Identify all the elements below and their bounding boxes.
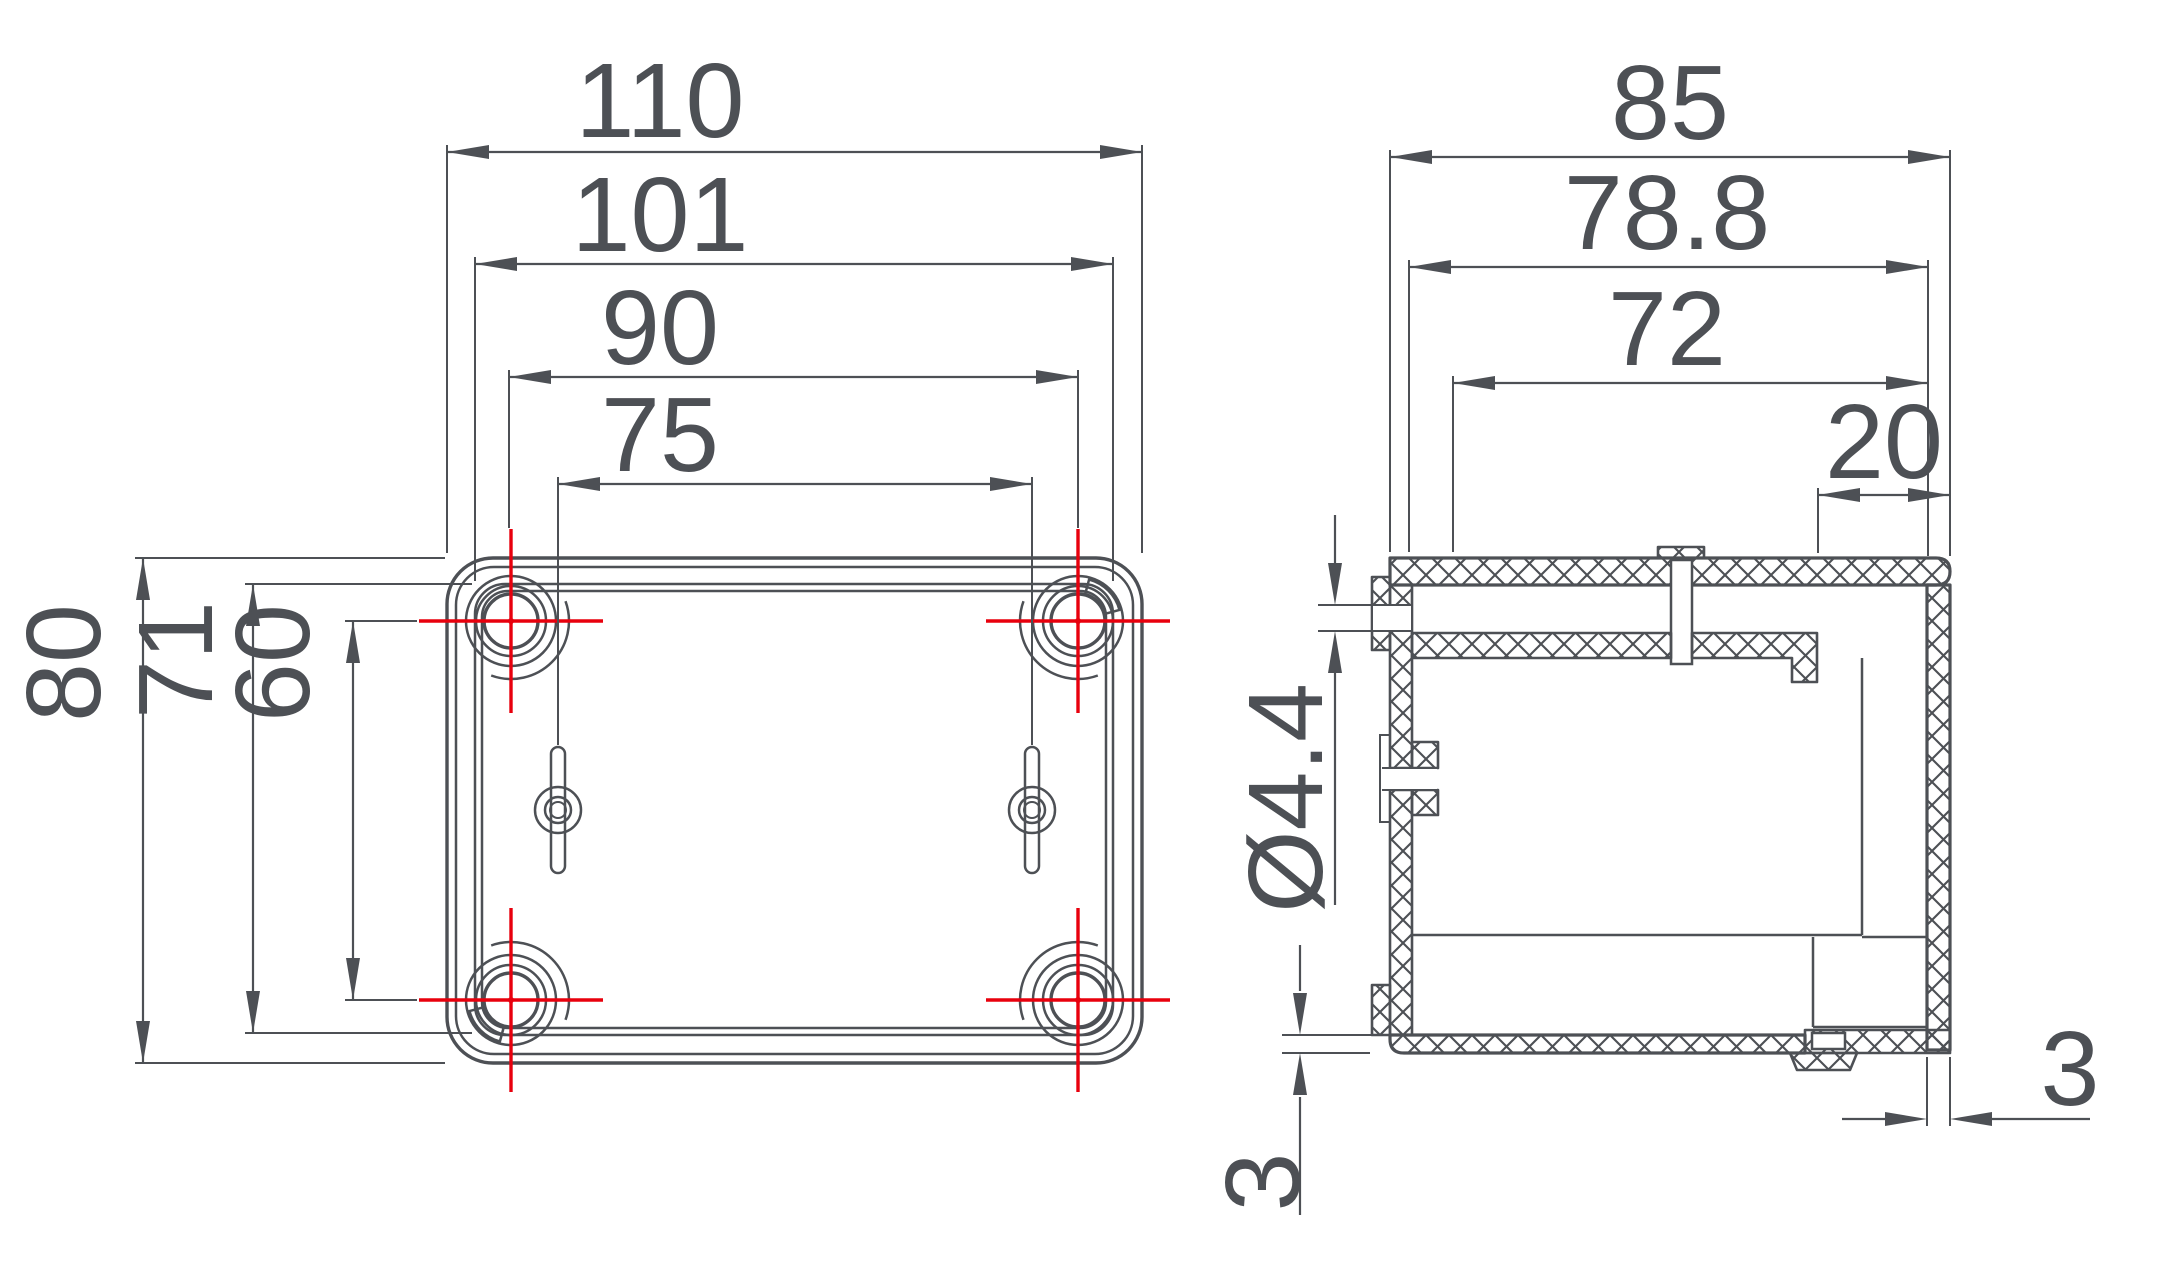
dim-label: 72 (1608, 270, 1726, 388)
dim-label: 75 (601, 376, 719, 494)
centerline-crosses (419, 529, 1170, 1092)
keyhole-boss-lower (1412, 790, 1438, 815)
cover-latch-tooth (1790, 1053, 1857, 1070)
side-view-section-walls (1372, 547, 1950, 1070)
dim-label: 85 (1611, 44, 1729, 162)
dim-depth-20: 20 (1818, 383, 1950, 553)
back-wall-lower (1390, 790, 1412, 1035)
dim-label: 80 (5, 604, 123, 722)
dim-label: 3 (2041, 1010, 2100, 1128)
bottom-wall-section (1390, 1035, 1805, 1053)
cover-screw-bump (1658, 547, 1704, 558)
side-view-holes (1372, 605, 1845, 1049)
dim-width-101: 101 (475, 156, 1113, 581)
dim-height-60: 60 (214, 604, 417, 1000)
front-view: 110 101 90 75 80 (5, 42, 1170, 1092)
latch-window (1812, 1033, 1845, 1049)
dim-width-75: 75 (558, 376, 1032, 745)
keyhole-slot-left (535, 747, 581, 873)
mount-tab-bottom (1372, 985, 1390, 1035)
inner-rib-left (1412, 633, 1671, 658)
inner-rib-hook (1692, 633, 1817, 682)
dim-label: 78.8 (1564, 154, 1770, 272)
technical-drawing: 110 101 90 75 80 (0, 0, 2164, 1286)
cover-wall-section (1927, 585, 1950, 1050)
dim-width-110: 110 (447, 42, 1142, 553)
dim-label: 101 (572, 156, 749, 274)
dim-label: 90 (601, 269, 719, 387)
side-view-interior-lines (1412, 658, 1927, 1027)
cover-screw-hole (1671, 560, 1692, 664)
corner-boss-bottom-right (1020, 942, 1123, 1045)
dim-label: 60 (214, 604, 332, 722)
side-view: 85 78.8 72 20 Ø4.4 (1204, 44, 2099, 1215)
dim-base-thickness: 3 (1204, 945, 1388, 1215)
dim-label: Ø4.4 (1227, 683, 1345, 913)
dim-label: 110 (576, 42, 745, 160)
dim-label: 3 (1204, 1153, 1322, 1212)
keyhole-boss-upper (1412, 742, 1438, 768)
cavity-outline-inner (482, 591, 1106, 1028)
drawing-sheet: 110 101 90 75 80 (0, 0, 2164, 1286)
keyhole-slot-right (1009, 747, 1055, 873)
dim-hole-diameter: Ø4.4 (1227, 515, 1372, 913)
dim-label: 20 (1825, 383, 1943, 501)
